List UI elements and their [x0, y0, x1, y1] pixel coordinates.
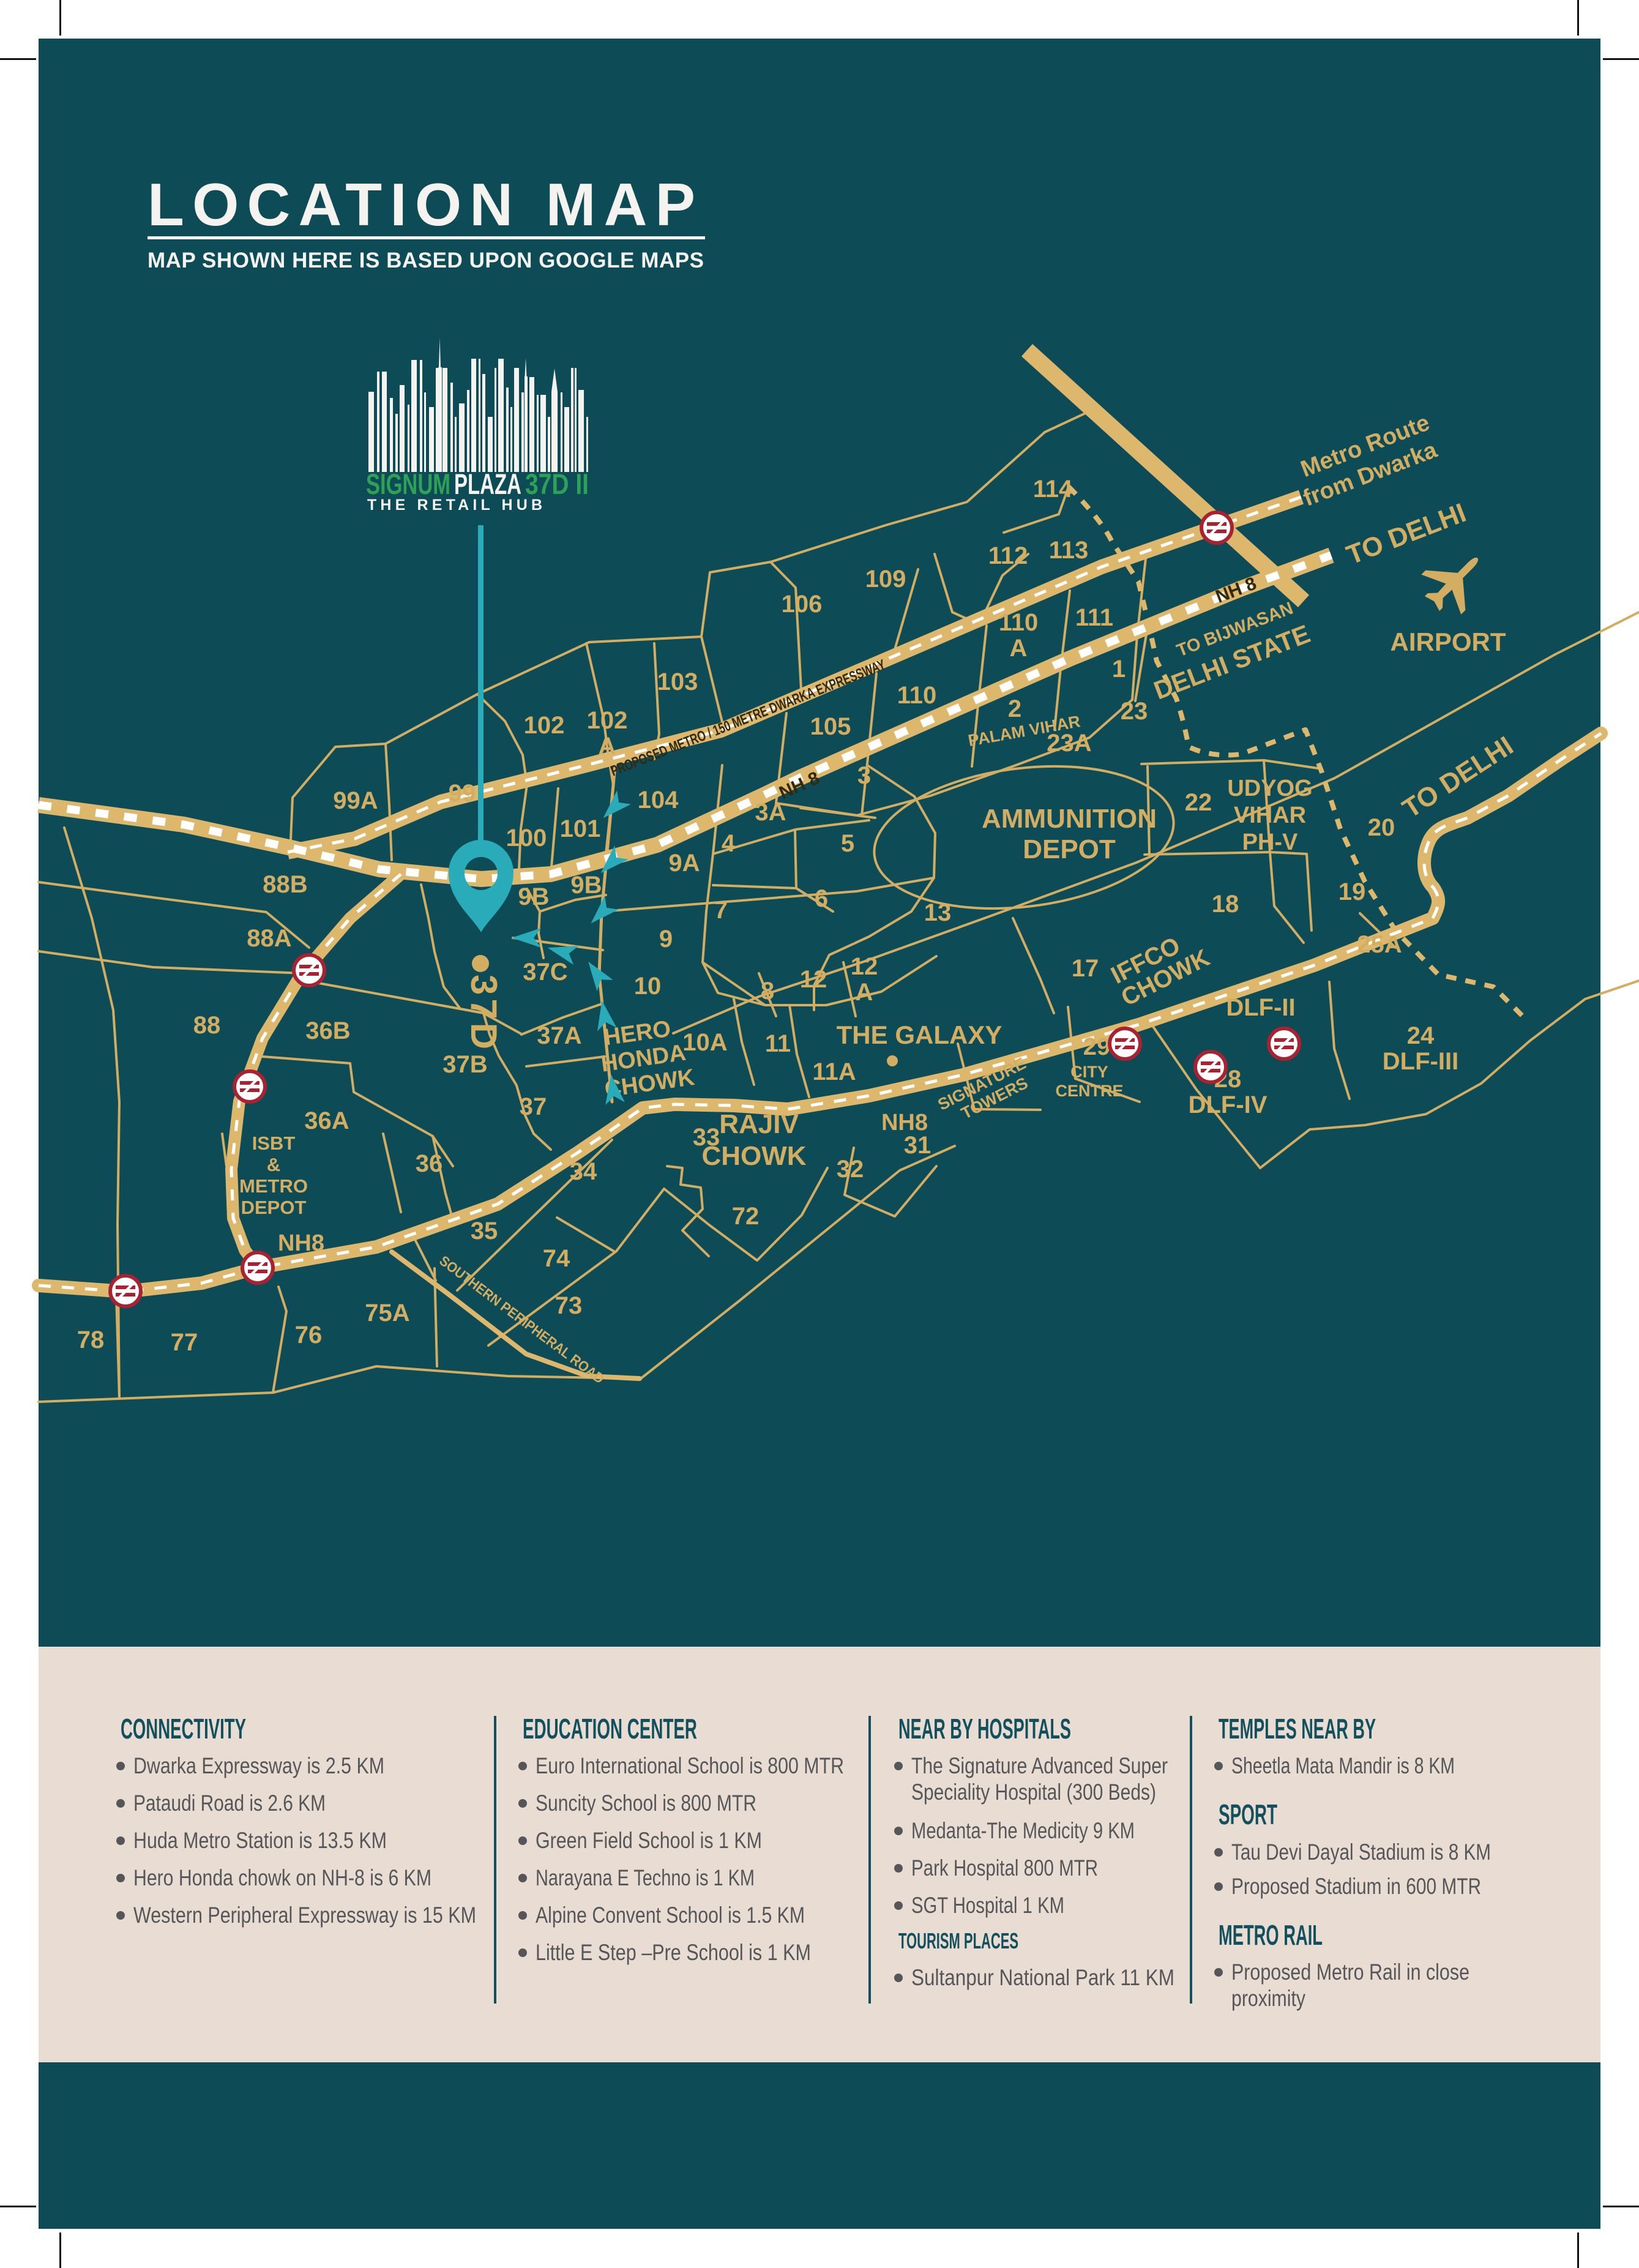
svg-text:TEMPLES NEAR BY: TEMPLES NEAR BY: [1219, 1713, 1376, 1745]
svg-text:6: 6: [815, 885, 828, 912]
svg-text:3: 3: [857, 762, 871, 789]
svg-text:Hero Honda chowk on NH-8 is 6: Hero Honda chowk on NH-8 is 6 KM: [133, 1865, 431, 1890]
svg-text:25A: 25A: [1357, 931, 1402, 958]
svg-text:A: A: [856, 979, 873, 1006]
svg-text:10A: 10A: [682, 1029, 727, 1056]
svg-text:74: 74: [543, 1245, 570, 1272]
svg-text:37D II: 37D II: [525, 468, 589, 500]
svg-text:9B: 9B: [518, 883, 549, 910]
svg-text:114: 114: [1033, 476, 1073, 503]
svg-text:101: 101: [560, 815, 601, 842]
svg-text:CONNECTIVITY: CONNECTIVITY: [121, 1713, 246, 1745]
svg-text:3A: 3A: [755, 799, 786, 826]
svg-text:Pataudi Road is 2.6 KM: Pataudi Road is 2.6 KM: [133, 1791, 326, 1816]
svg-text:32: 32: [837, 1156, 864, 1183]
svg-text:7: 7: [714, 897, 728, 924]
svg-text:5: 5: [841, 830, 854, 857]
svg-text:EDUCATION CENTER: EDUCATION CENTER: [523, 1713, 697, 1745]
svg-text:23: 23: [1121, 698, 1148, 725]
svg-text:100: 100: [506, 825, 547, 851]
svg-text:34: 34: [570, 1158, 597, 1185]
svg-text:PH-V: PH-V: [1242, 829, 1298, 855]
svg-text:Sultanpur National Park 11 KM: Sultanpur National Park 11 KM: [911, 1965, 1174, 1990]
svg-text:&: &: [267, 1154, 280, 1175]
svg-text:37: 37: [520, 1093, 547, 1120]
svg-text:109: 109: [865, 566, 906, 593]
svg-text:75A: 75A: [365, 1300, 409, 1327]
svg-text:76: 76: [295, 1322, 323, 1349]
svg-text:24: 24: [1407, 1022, 1435, 1049]
svg-text:CHOWK: CHOWK: [701, 1141, 806, 1171]
svg-text:proximity: proximity: [1231, 1986, 1305, 2011]
svg-text:Proposed Stadium in 600 MTR: Proposed Stadium in 600 MTR: [1231, 1874, 1481, 1899]
svg-text:10: 10: [634, 973, 662, 1000]
svg-text:73: 73: [555, 1292, 583, 1319]
svg-text:9: 9: [659, 926, 673, 952]
svg-text:36A: 36A: [304, 1107, 349, 1134]
svg-text:TOURISM PLACES: TOURISM PLACES: [898, 1928, 1018, 1953]
svg-text:1: 1: [1112, 656, 1126, 683]
svg-text:ISBT: ISBT: [252, 1132, 296, 1154]
svg-text:THE GALAXY: THE GALAXY: [837, 1020, 1002, 1049]
svg-text:99: 99: [449, 780, 476, 807]
svg-text:2: 2: [1008, 695, 1021, 722]
svg-text:31: 31: [904, 1132, 932, 1159]
svg-text:9B: 9B: [570, 872, 602, 899]
svg-text:13: 13: [924, 899, 952, 926]
svg-text:Dwarka Expressway is 2.5 KM: Dwarka Expressway is 2.5 KM: [133, 1753, 384, 1778]
svg-text:Narayana E Techno is 1 KM: Narayana E Techno is 1 KM: [536, 1865, 755, 1890]
svg-text:102: 102: [524, 712, 565, 739]
svg-text:METRO: METRO: [239, 1175, 308, 1197]
svg-text:RAJIV: RAJIV: [719, 1109, 799, 1139]
svg-text:88B: 88B: [263, 871, 307, 898]
svg-text:CITY: CITY: [1070, 1063, 1108, 1081]
svg-text:36B: 36B: [305, 1017, 350, 1044]
svg-text:110: 110: [897, 682, 937, 709]
svg-text:NEAR BY HOSPITALS: NEAR BY HOSPITALS: [898, 1713, 1071, 1745]
svg-text:Park Hospital 800 MTR: Park Hospital 800 MTR: [911, 1855, 1098, 1881]
svg-text:UDYOG: UDYOG: [1227, 776, 1312, 801]
svg-text:A: A: [599, 733, 616, 760]
svg-text:20: 20: [1368, 814, 1395, 841]
svg-text:37B: 37B: [442, 1051, 487, 1078]
svg-text:METRO RAIL: METRO RAIL: [1219, 1919, 1323, 1951]
svg-text:Suncity School is 800 MTR: Suncity School is 800 MTR: [536, 1791, 756, 1816]
svg-text:99A: 99A: [333, 787, 378, 814]
svg-text:37A: 37A: [537, 1022, 581, 1049]
svg-text:SIGNUM: SIGNUM: [366, 468, 450, 500]
svg-text:17: 17: [1072, 955, 1099, 982]
svg-text:Speciality Hospital (300 Beds): Speciality Hospital (300 Beds): [911, 1780, 1156, 1805]
svg-text:DEPOT: DEPOT: [1023, 834, 1116, 864]
svg-text:A: A: [1010, 635, 1028, 662]
svg-text:72: 72: [732, 1203, 760, 1230]
svg-text:SPORT: SPORT: [1219, 1798, 1277, 1830]
svg-text:Medanta-The Medicity 9 KM: Medanta-The Medicity 9 KM: [911, 1818, 1135, 1843]
svg-text:MAP SHOWN HERE IS BASED UPON G: MAP SHOWN HERE IS BASED UPON GOOGLE MAPS: [147, 249, 704, 272]
svg-text:11: 11: [765, 1030, 791, 1057]
svg-text:Sheetla Mata Mandir is 8 KM: Sheetla Mata Mandir is 8 KM: [1231, 1753, 1455, 1778]
svg-text:9A: 9A: [668, 850, 700, 877]
svg-text:LOCATION MAP: LOCATION MAP: [147, 171, 695, 238]
svg-text:NH8: NH8: [881, 1110, 928, 1136]
svg-text:Tau Devi Dayal Stadium is 8 KM: Tau Devi Dayal Stadium is 8 KM: [1231, 1839, 1491, 1865]
svg-text:113: 113: [1049, 537, 1089, 564]
svg-text:AMMUNITION: AMMUNITION: [982, 804, 1157, 834]
svg-text:12: 12: [851, 953, 878, 980]
svg-text:36: 36: [416, 1150, 443, 1177]
svg-text:VIHAR: VIHAR: [1234, 803, 1306, 828]
svg-text:CENTRE: CENTRE: [1055, 1082, 1123, 1100]
svg-text:DLF-IV: DLF-IV: [1189, 1091, 1268, 1118]
svg-text:11A: 11A: [812, 1058, 856, 1085]
svg-text:DLF-III: DLF-III: [1383, 1048, 1458, 1075]
svg-text:Proposed Metro Rail in close: Proposed Metro Rail in close: [1231, 1959, 1469, 1985]
svg-text:SGT Hospital 1 KM: SGT Hospital 1 KM: [911, 1893, 1064, 1918]
svg-text:Western Peripheral Expressway: Western Peripheral Expressway is 15 KM: [133, 1903, 476, 1928]
svg-text:DEPOT: DEPOT: [241, 1197, 307, 1218]
svg-text:37D: 37D: [463, 975, 504, 1053]
svg-text:NH8: NH8: [278, 1230, 324, 1256]
svg-text:8: 8: [761, 978, 774, 1005]
svg-text:111: 111: [1075, 604, 1113, 631]
svg-text:PLAZA: PLAZA: [454, 468, 521, 500]
svg-text:29: 29: [1083, 1033, 1111, 1060]
svg-text:Huda Metro Station is 13.5 KM: Huda Metro Station is 13.5 KM: [133, 1828, 387, 1853]
svg-text:Little E Step –Pre School is 1: Little E Step –Pre School is 1 KM: [536, 1940, 811, 1965]
svg-text:106: 106: [782, 591, 823, 618]
svg-text:4: 4: [722, 830, 736, 857]
svg-text:105: 105: [810, 713, 851, 740]
svg-text:The Signature Advanced Super: The Signature Advanced Super: [911, 1753, 1168, 1778]
svg-text:Euro International School is 8: Euro International School is 800 MTR: [536, 1753, 844, 1778]
svg-text:103: 103: [657, 668, 698, 695]
svg-text:77: 77: [171, 1329, 198, 1356]
svg-text:18: 18: [1212, 891, 1239, 918]
svg-text:78: 78: [77, 1327, 105, 1353]
svg-text:35: 35: [471, 1218, 498, 1244]
svg-text:22: 22: [1185, 789, 1212, 816]
svg-text:110: 110: [999, 609, 1039, 636]
svg-text:112: 112: [988, 542, 1028, 569]
svg-text:88: 88: [193, 1012, 221, 1039]
svg-text:104: 104: [638, 787, 679, 814]
svg-text:AIRPORT: AIRPORT: [1391, 627, 1506, 656]
svg-text:37C: 37C: [523, 959, 567, 986]
svg-text:DLF-II: DLF-II: [1226, 994, 1295, 1021]
svg-text:Green Field School is 1 KM: Green Field School is 1 KM: [536, 1828, 762, 1853]
svg-text:102: 102: [587, 707, 628, 734]
svg-text:88A: 88A: [247, 925, 291, 952]
svg-text:12: 12: [800, 966, 827, 993]
svg-text:19: 19: [1338, 878, 1366, 905]
svg-text:Alpine Convent School is 1.5 K: Alpine Convent School is 1.5 KM: [536, 1903, 805, 1928]
